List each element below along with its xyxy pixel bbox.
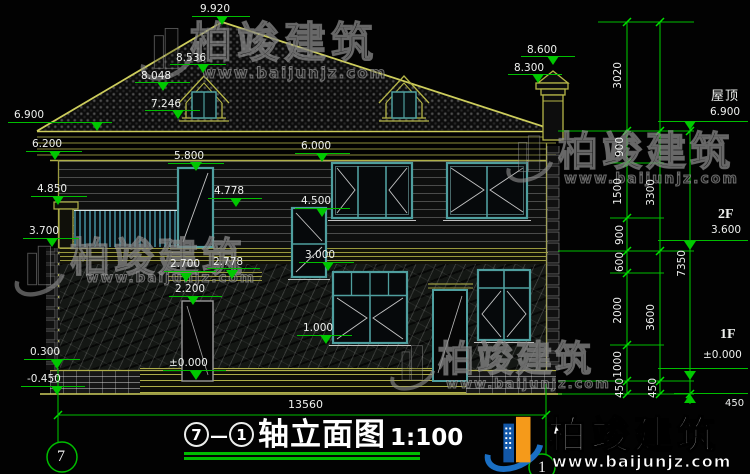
second-floor-window-left bbox=[332, 163, 412, 218]
first-floor-door-right bbox=[428, 284, 473, 381]
eave-cornice bbox=[37, 137, 556, 161]
right-dormer bbox=[379, 76, 429, 121]
dimension-chains bbox=[47, 18, 694, 474]
first-floor-window-right bbox=[478, 270, 530, 340]
roof-outline bbox=[37, 22, 556, 132]
left-dormer bbox=[179, 76, 229, 121]
porch-beam bbox=[168, 273, 262, 281]
staircase-window bbox=[292, 208, 326, 277]
first-floor-window-left bbox=[333, 272, 407, 343]
first-floor-door-left bbox=[182, 301, 213, 381]
cad-elevation-drawing: 柏竣建筑 www.baijunjz.com 柏竣建筑 www.baijunjz.… bbox=[0, 0, 750, 474]
chimney bbox=[536, 71, 568, 140]
right-corner-quoins bbox=[546, 146, 560, 370]
left-corner-quoins bbox=[46, 248, 60, 370]
balcony-pillar bbox=[54, 202, 78, 248]
second-floor-door bbox=[178, 168, 213, 247]
second-floor-window-right bbox=[447, 163, 527, 218]
drawing-linework bbox=[0, 0, 750, 474]
